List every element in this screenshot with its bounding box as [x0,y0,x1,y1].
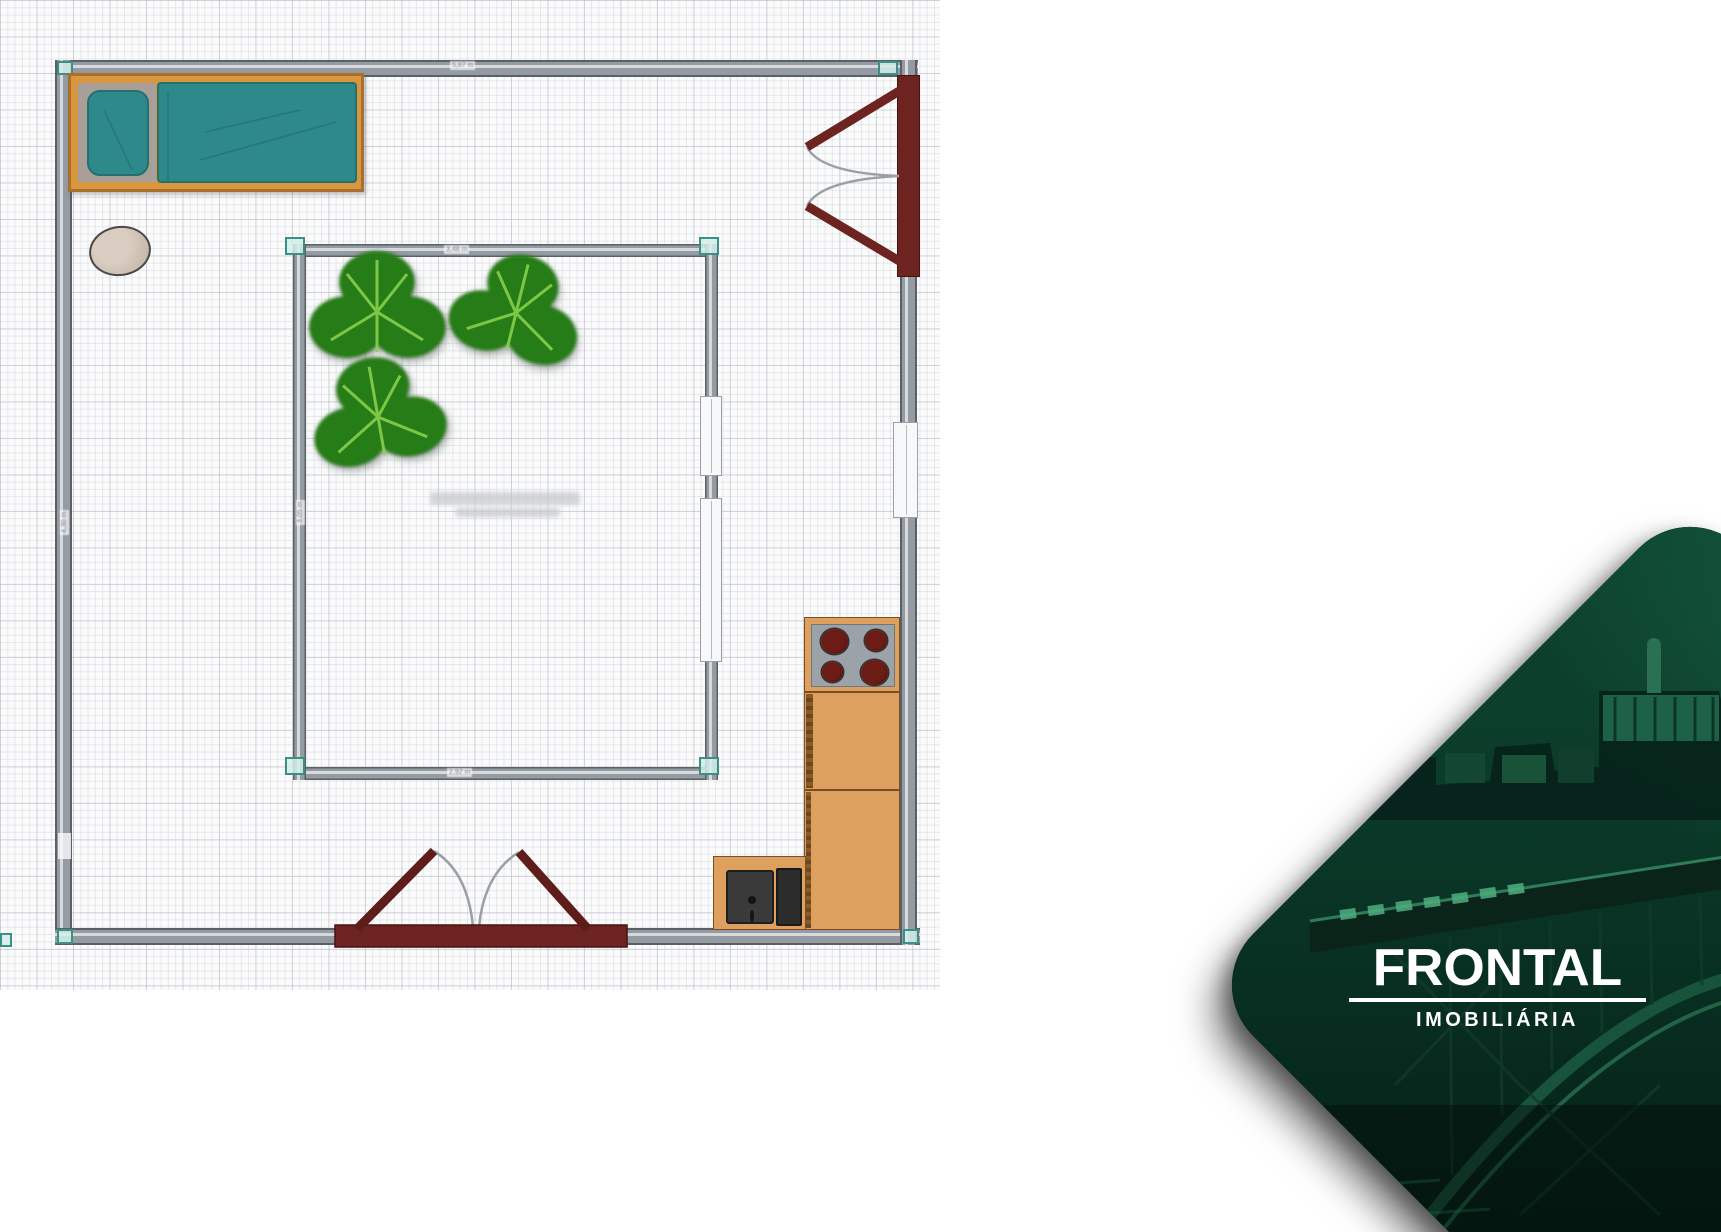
cityscape-art [1202,497,1721,1232]
agency-logo-diamond: FRONTAL IMOBILIÁRIA [1202,497,1721,1232]
entrance-door [807,90,901,262]
bed-sketch-lines [104,92,336,182]
plant-2 [442,240,594,373]
brand-divider-line [1349,998,1646,1002]
bridge-deck [1310,853,1721,953]
agency-brand: FRONTAL IMOBILIÁRIA [1345,945,1650,1030]
plan-overlay [0,0,940,990]
plant-3 [302,346,452,473]
floor-plan: 5,87 m 4,30 m 3,48 m 2,92 m 3,05 m [0,0,940,990]
agency-name: FRONTAL [1342,945,1653,991]
screenshot-root: 5,87 m 4,30 m 3,48 m 2,92 m 3,05 m [0,0,1721,1232]
bottom-door [335,851,627,947]
photo-bottom-shade [1202,1105,1721,1232]
skyline [1340,638,1721,820]
plant-1 [309,251,446,358]
logo-cityscape-photo: FRONTAL IMOBILIÁRIA [1202,497,1721,1232]
agency-subtitle: IMOBILIÁRIA [1345,1010,1650,1030]
